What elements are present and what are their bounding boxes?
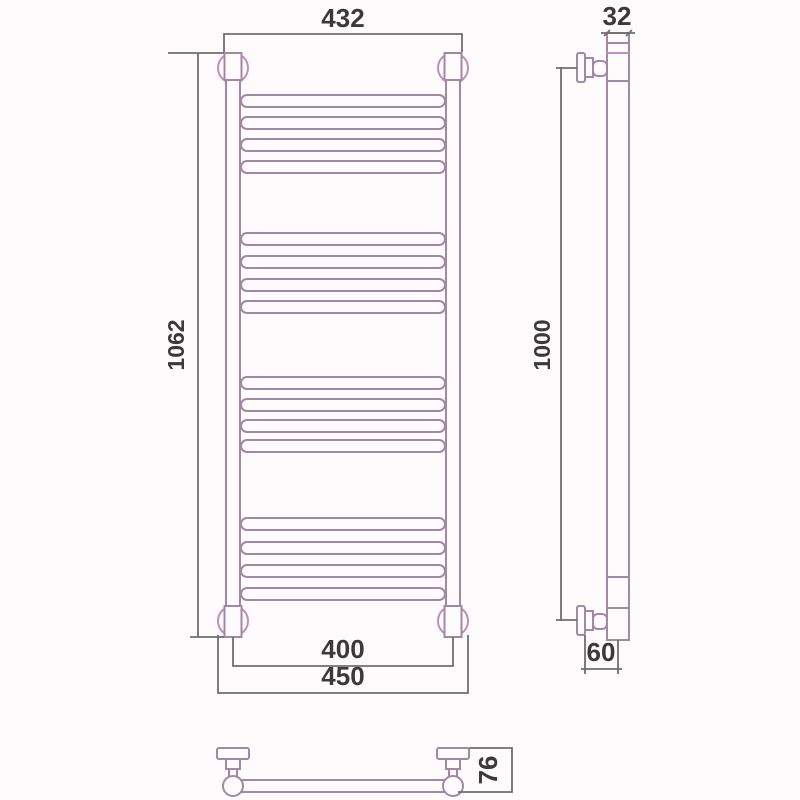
dimension-overall-height: 1062	[163, 53, 224, 637]
side-radiator-body	[577, 33, 629, 640]
bracket-block-bottom-left	[225, 606, 242, 637]
side-tube	[607, 33, 629, 640]
side-view: 32 1000 60	[529, 1, 635, 674]
dimension-top-width: 432	[224, 3, 462, 52]
technical-drawing-page: 432 1062 400 450	[0, 0, 800, 800]
rung	[241, 565, 445, 577]
rung	[241, 256, 445, 268]
bracket-flange	[217, 748, 249, 759]
bottom-bracket-left	[217, 748, 249, 777]
front-radiator-body	[218, 53, 468, 637]
side-bracket-top	[577, 53, 607, 82]
dim-axis-width-label: 400	[321, 634, 364, 664]
bracket-block-top-left	[225, 53, 242, 80]
side-bracket-bottom	[577, 606, 607, 635]
bracket-flange	[577, 53, 585, 82]
bottom-radiator-body	[217, 748, 469, 796]
rung	[241, 161, 445, 173]
rung	[241, 95, 445, 107]
rung	[241, 233, 445, 245]
bracket-flange	[437, 748, 469, 759]
rung	[241, 117, 445, 129]
rung	[241, 139, 445, 151]
bracket-neck	[585, 58, 593, 77]
dim-mount-spacing-label: 1000	[529, 319, 555, 370]
tube-section-left	[223, 776, 243, 796]
bracket-neck	[226, 759, 240, 769]
bracket-neck	[446, 759, 460, 769]
right-tube	[446, 80, 460, 606]
bracket-flange	[577, 606, 585, 635]
rung-group-4	[241, 518, 445, 600]
bracket-neck	[585, 611, 593, 630]
front-view: 432 1062 400 450	[163, 3, 468, 693]
bottom-rung-tube	[228, 780, 458, 792]
radiator-drawing: 432 1062 400 450	[0, 0, 800, 800]
bracket-block-top-right	[445, 53, 462, 80]
tube-section-right	[443, 776, 463, 796]
dim-top-width-label: 432	[321, 3, 364, 33]
rung	[241, 420, 445, 432]
bottom-bracket-right	[437, 748, 469, 777]
rung-group-2	[241, 233, 445, 313]
rung	[241, 542, 445, 554]
rung	[241, 377, 445, 389]
left-tube	[226, 80, 240, 606]
rung	[241, 279, 445, 291]
bracket-bulb	[593, 61, 607, 76]
dim-height-label: 1062	[163, 319, 189, 370]
rung-group-1	[241, 95, 445, 173]
dim-outer-width-label: 450	[321, 661, 364, 691]
dimension-mount-spacing: 1000	[529, 68, 577, 620]
dimension-tube-width: 32	[601, 1, 635, 36]
rung-group-3	[241, 377, 445, 452]
rung	[241, 440, 445, 452]
dim-wall-offset-label: 60	[587, 637, 616, 667]
bracket-block-bottom-right	[445, 606, 462, 637]
rung	[241, 588, 445, 600]
rung	[241, 518, 445, 530]
rung	[241, 399, 445, 411]
bracket-bulb	[593, 614, 607, 629]
rung	[241, 301, 445, 313]
dim-depth-label: 76	[473, 756, 503, 785]
bottom-view: 76	[217, 748, 512, 796]
dim-tube-width-label: 32	[603, 1, 632, 31]
